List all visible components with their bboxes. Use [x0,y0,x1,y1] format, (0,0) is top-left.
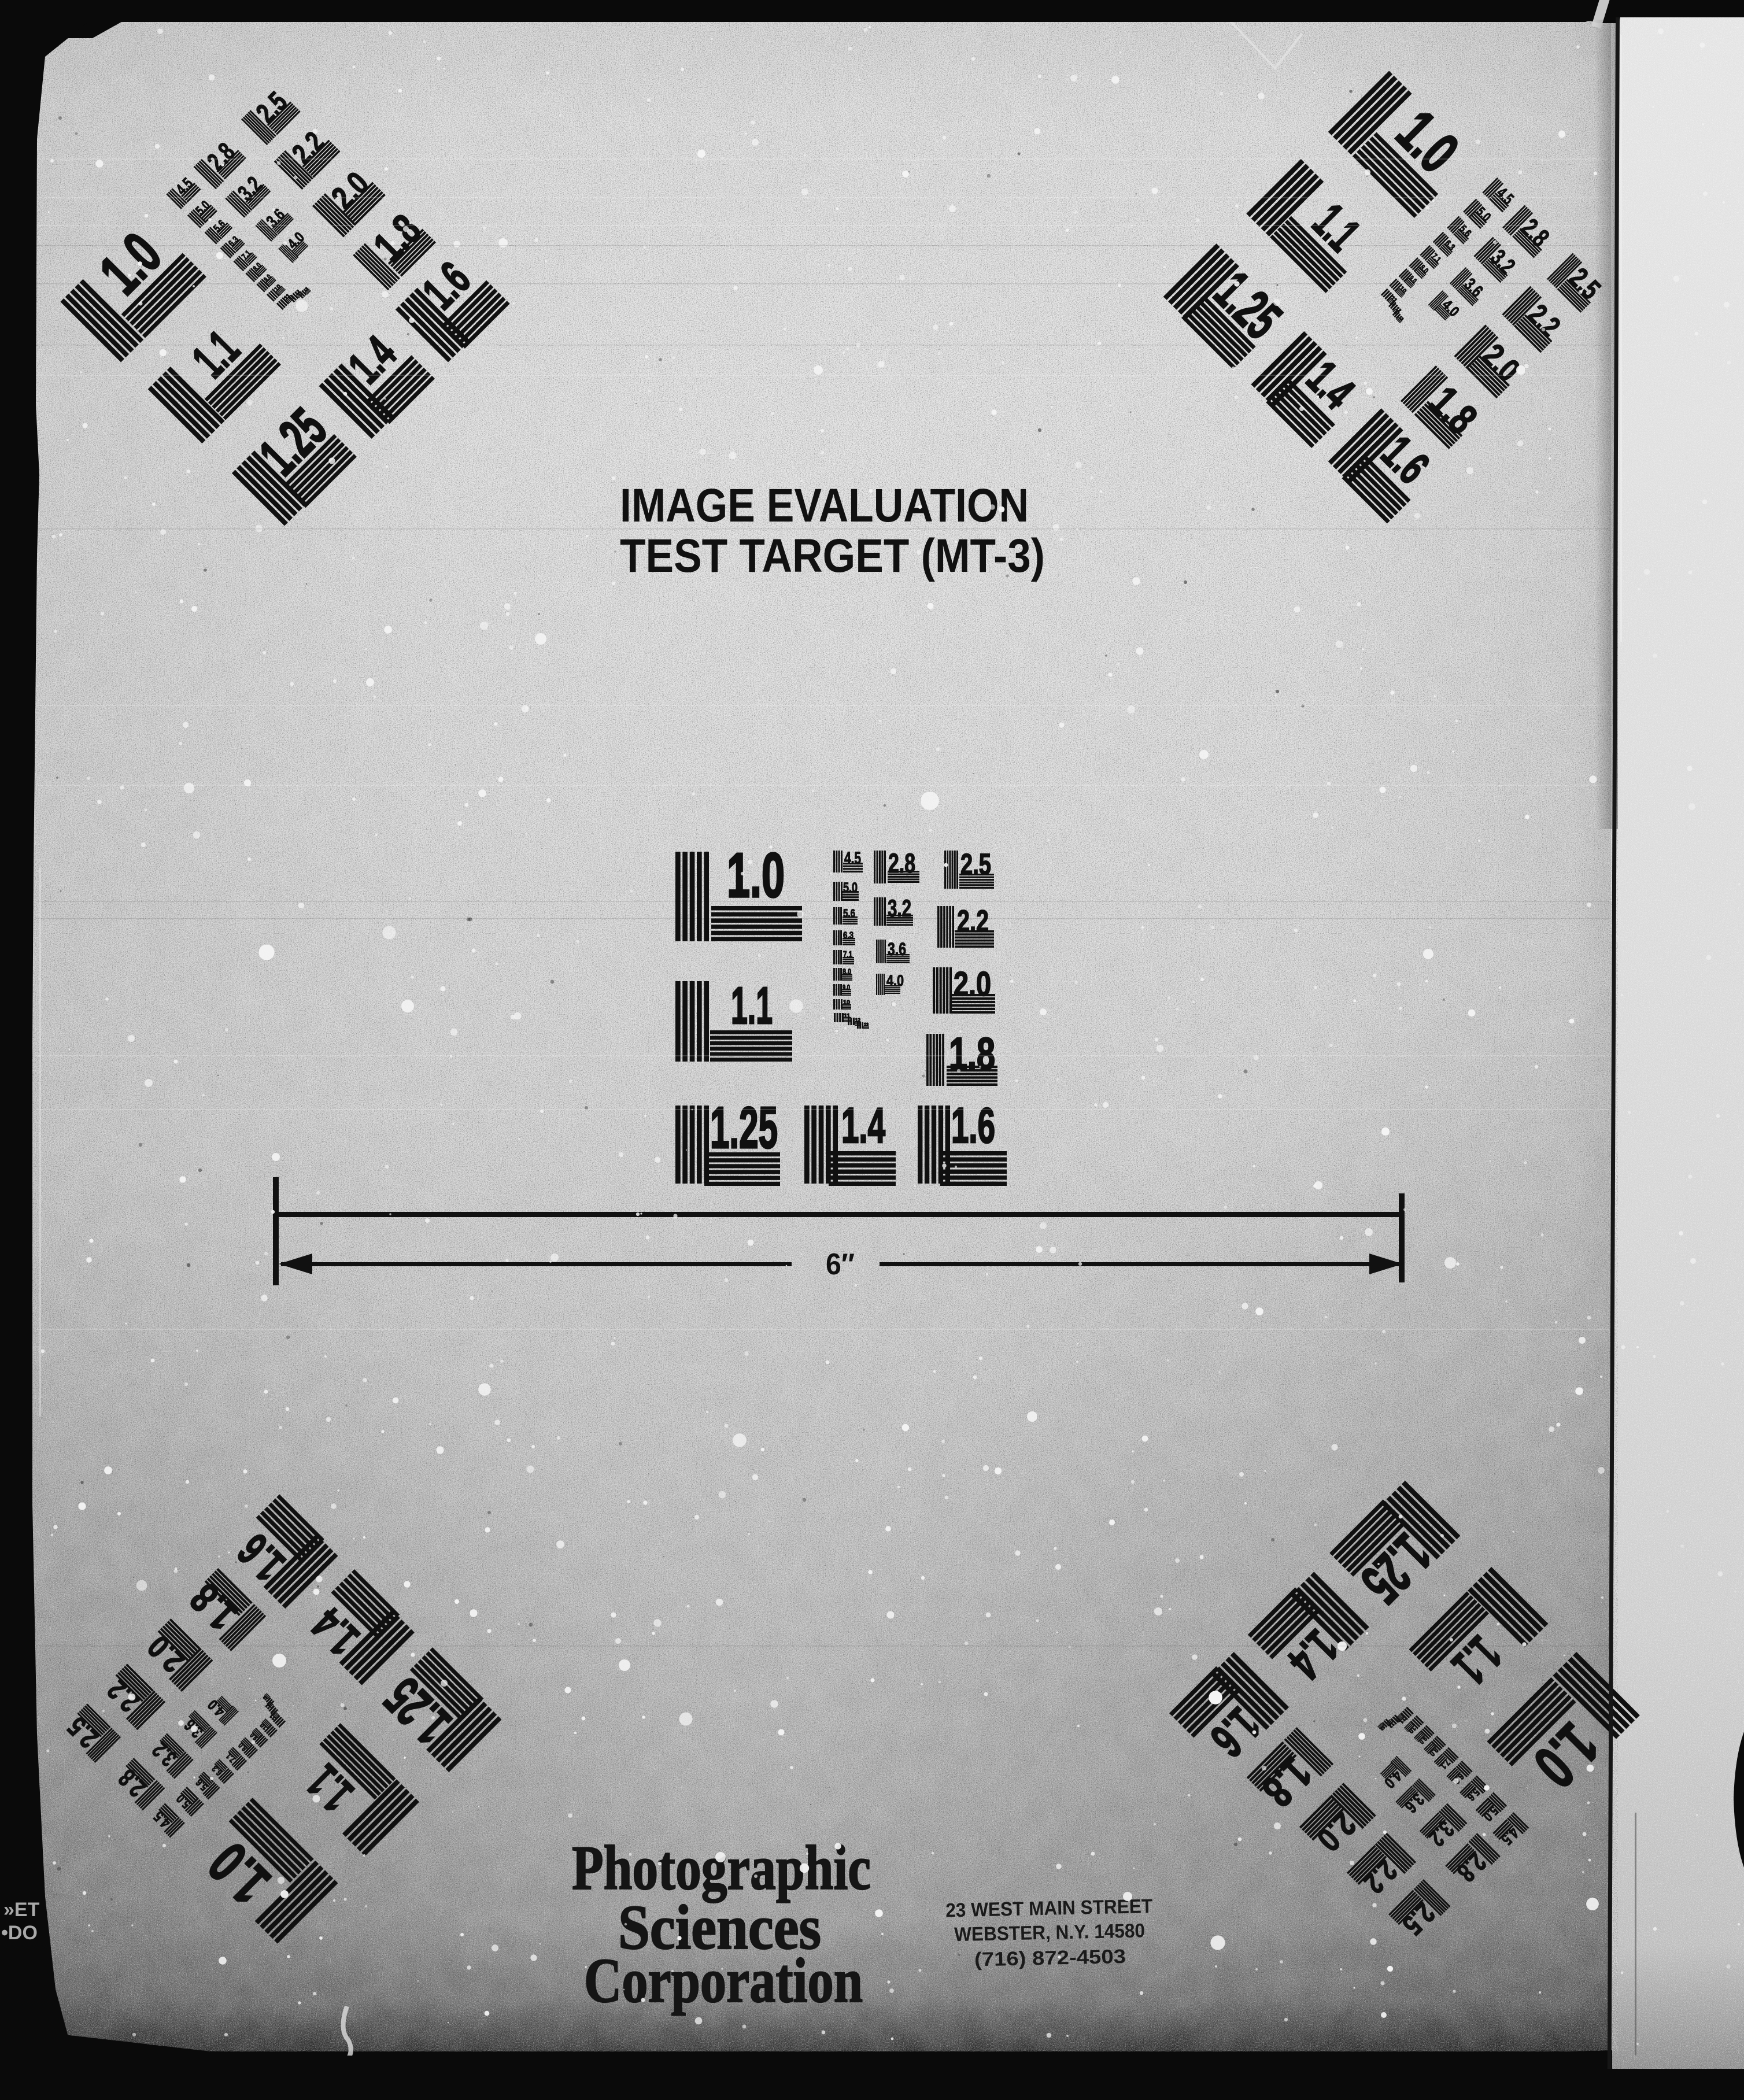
svg-text:Corporation: Corporation [584,1946,863,2016]
svg-text:6″: 6″ [826,1248,855,1281]
svg-text:•DO: •DO [1,1922,38,1944]
svg-text:23 WEST MAIN STREET: 23 WEST MAIN STREET [945,1895,1153,1921]
svg-text:IMAGE EVALUATION: IMAGE EVALUATION [620,479,1029,532]
svg-text:TEST TARGET (MT-3): TEST TARGET (MT-3) [620,530,1045,582]
svg-text:»ET: »ET [3,1899,40,1921]
svg-text:WEBSTER, N.Y. 14580: WEBSTER, N.Y. 14580 [954,1920,1146,1946]
svg-text:(716) 872-4503: (716) 872-4503 [974,1946,1126,1970]
